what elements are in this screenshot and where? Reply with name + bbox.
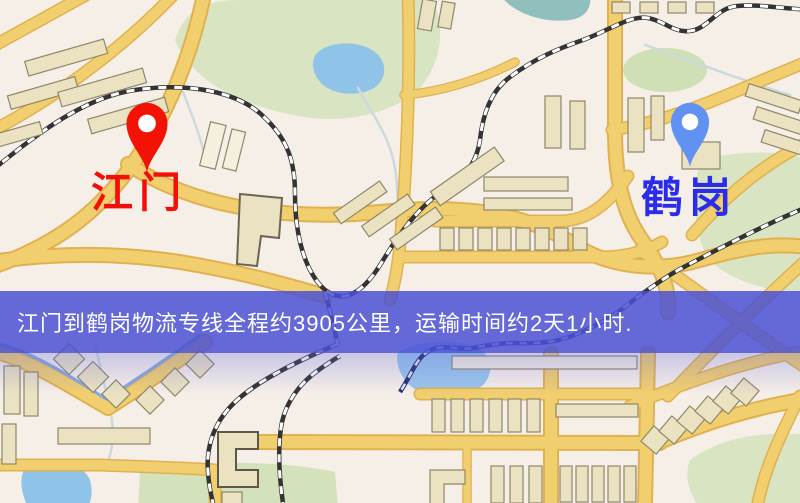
origin-label: 江门 [91,172,187,214]
route-info-text: 江门到鹤岗物流专线全程约3905公里，运输时间约2天1小时. [17,291,633,353]
destination-pin-icon[interactable] [664,99,716,169]
origin-pin-icon[interactable] [119,99,175,174]
destination-label: 鹤岗 [641,177,737,219]
route-info-banner: 江门到鹤岗物流专线全程约3905公里，运输时间约2天1小时. [0,291,800,353]
map-screenshot: 江门 鹤岗 江门到鹤岗物流专线全程约3905公里，运输时间约2天1小时. [0,0,800,503]
map-background[interactable] [0,0,800,503]
